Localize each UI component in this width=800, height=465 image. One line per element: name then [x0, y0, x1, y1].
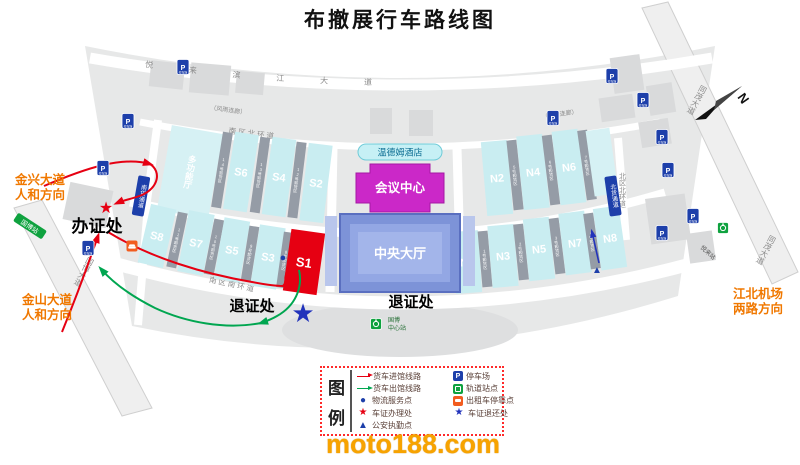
svg-text:N5: N5	[531, 243, 546, 256]
station-label-guobo-center: 国博	[388, 316, 400, 324]
route-map-page: 布撤展行车路线图 P 停车场	[0, 0, 800, 465]
blue-star-icon: ★	[453, 408, 465, 418]
direction-jinxing: 金兴大道	[14, 172, 66, 187]
central-hall: 中央大厅	[340, 214, 460, 292]
legend-item-permit-office: ★车证办理处	[357, 408, 453, 419]
parking-icon	[122, 114, 134, 129]
parking-icon	[656, 130, 668, 145]
svg-text:N4: N4	[525, 166, 541, 179]
svg-text:S5: S5	[224, 244, 239, 258]
svg-text:N3: N3	[496, 250, 511, 263]
parking-icon	[606, 69, 618, 84]
legend-item-truck-out: 货车出馆线路	[357, 383, 453, 394]
dot-icon: ●	[357, 396, 369, 406]
direction-jinshan: 人和方向	[22, 307, 72, 322]
svg-text:温德姆酒店: 温德姆酒店	[377, 147, 422, 158]
svg-text:中央大厅: 中央大厅	[374, 246, 426, 261]
permit-office-label: 办证处	[72, 216, 124, 236]
parking-icon	[177, 60, 189, 75]
direction-jinshan: 金山大道	[21, 292, 73, 307]
svg-text:S3: S3	[260, 251, 275, 265]
red-arrow-icon	[357, 376, 370, 377]
parking-icon: P	[453, 371, 463, 381]
legend-title-char: 例	[328, 404, 345, 429]
watermark: moto188.com	[326, 429, 500, 460]
svg-text:S2: S2	[308, 177, 323, 191]
parking-icon	[662, 163, 674, 178]
direction-airport: 两路方向	[733, 301, 783, 316]
legend-title-char: 图	[328, 374, 345, 399]
legend-item-permit-return: ★车证退还处	[453, 408, 525, 419]
parking-icon	[97, 161, 109, 176]
permit-return-label-left: 退证处	[229, 297, 275, 315]
direction-airport: 江北机场	[733, 286, 783, 301]
permit-return-star: ★	[291, 298, 314, 328]
parking-icon	[656, 226, 668, 241]
svg-text:S7: S7	[188, 237, 204, 251]
legend-item-logistics: ●物流服务点	[357, 395, 453, 406]
svg-text:N2: N2	[490, 172, 505, 185]
direction-jinxing: 人和方向	[15, 187, 65, 202]
legend-items: 货车进馆线路 货车出馆线路 ●物流服务点 ★车证办理处 ▲公安执勤点 P停车场 …	[357, 370, 525, 432]
rail-icon	[453, 384, 463, 394]
parking-icon	[637, 93, 649, 108]
parking-icon	[687, 209, 699, 224]
legend-item-truck-in: 货车进馆线路	[357, 371, 453, 382]
permit-return-label-right: 退证处	[388, 293, 434, 311]
logistics-point-dot: ●	[280, 252, 287, 264]
central-hall-west-wing	[325, 216, 337, 286]
svg-text:N8: N8	[602, 232, 618, 246]
legend-box: 图 例 货车进馆线路 货车出馆线路 ●物流服务点 ★车证办理处 ▲公安执勤点 P…	[320, 366, 504, 436]
svg-text:N6: N6	[561, 161, 576, 175]
legend-title: 图 例	[326, 370, 352, 432]
red-star-icon: ★	[357, 408, 369, 418]
green-arrow-icon	[357, 388, 370, 389]
taxi-icon	[453, 396, 463, 406]
taxi-stop-icon	[127, 241, 138, 252]
north-letter: N	[735, 90, 753, 106]
svg-text:会议中心: 会议中心	[375, 180, 426, 195]
legend-item-parking: P停车场	[453, 371, 525, 382]
police-point-triangle: ▲	[592, 265, 602, 276]
hall-n3: N3	[487, 224, 518, 288]
hotel-label: 温德姆酒店	[358, 144, 442, 160]
rail-station-icon	[371, 319, 382, 330]
legend-item-rail: 轨道站点	[453, 383, 525, 394]
svg-text:S4: S4	[271, 171, 287, 185]
parking-icon	[547, 111, 559, 126]
svg-text:N7: N7	[567, 237, 582, 251]
central-hall-east-wing	[463, 216, 475, 286]
permit-office-star: ★	[99, 200, 113, 217]
legend-item-taxi: 出租车停靠点	[453, 395, 525, 406]
station-label-guobo-center: 中心站	[388, 324, 406, 332]
parking-icon	[82, 241, 94, 256]
svg-text:S6: S6	[233, 166, 248, 180]
svg-text:S1: S1	[295, 254, 313, 271]
rail-station-icon	[718, 223, 729, 234]
